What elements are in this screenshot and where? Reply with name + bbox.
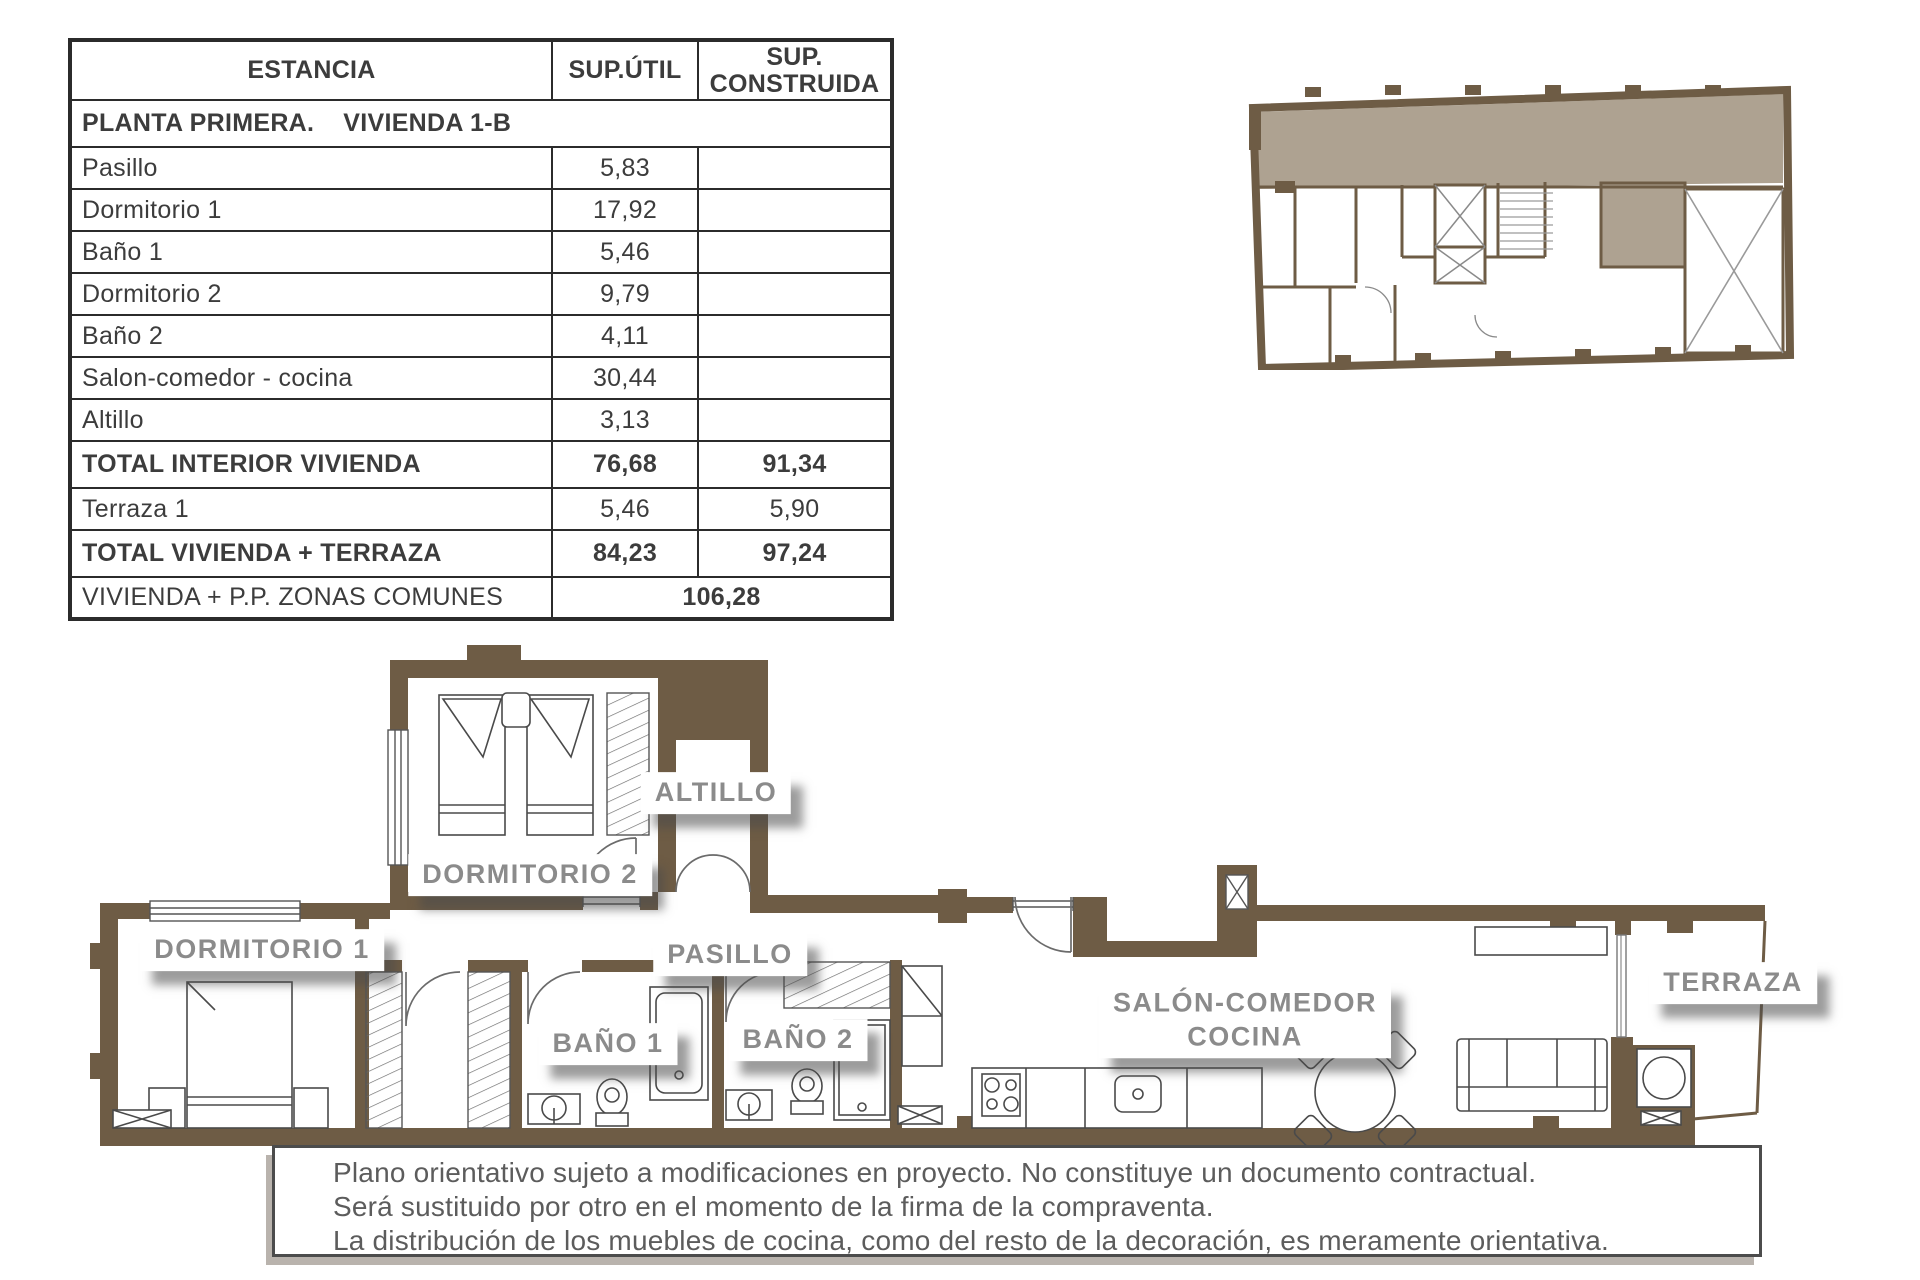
- room-name-cell: Dormitorio 2: [70, 273, 552, 315]
- area-value-cell: 97,24: [698, 530, 892, 577]
- table-row: Baño 24,11: [70, 315, 892, 357]
- area-table: ESTANCIA SUP.ÚTIL SUP. CONSTRUIDA PLANTA…: [68, 38, 894, 621]
- area-value-cell: [698, 189, 892, 231]
- room-name-cell: TOTAL INTERIOR VIVIENDA: [70, 441, 552, 488]
- label-terraza: TERRAZA: [1649, 962, 1817, 1004]
- area-value-cell: 4,11: [552, 315, 698, 357]
- label-altillo: ALTILLO: [641, 772, 791, 814]
- room-name-cell: TOTAL VIVIENDA + TERRAZA: [70, 530, 552, 577]
- section-title: PLANTA PRIMERA. VIVIENDA 1-B: [70, 100, 892, 147]
- area-value-cell: 91,34: [698, 441, 892, 488]
- table-row: Salon-comedor - cocina30,44: [70, 357, 892, 399]
- area-value-cell: 5,46: [552, 488, 698, 530]
- room-name-cell: Salon-comedor - cocina: [70, 357, 552, 399]
- area-value-cell: 3,13: [552, 399, 698, 441]
- room-name-cell: Pasillo: [70, 147, 552, 189]
- header-sup-util: SUP.ÚTIL: [552, 40, 698, 100]
- area-value-cell: 84,23: [552, 530, 698, 577]
- area-value-cell: 76,68: [552, 441, 698, 488]
- disclaimer-line-2: Será sustituido por otro en el momento d…: [333, 1190, 1739, 1224]
- room-name-cell: Baño 2: [70, 315, 552, 357]
- area-value-cell: 30,44: [552, 357, 698, 399]
- table-row: Baño 15,46: [70, 231, 892, 273]
- area-value-cell: [698, 315, 892, 357]
- area-value-cell: 5,46: [552, 231, 698, 273]
- label-salon-line1: SALÓN-COMEDOR: [1113, 987, 1377, 1017]
- table-header-row: ESTANCIA SUP.ÚTIL SUP. CONSTRUIDA: [70, 40, 892, 100]
- area-value-cell: [698, 231, 892, 273]
- keyplan: [1245, 85, 1795, 370]
- room-name-cell: Dormitorio 1: [70, 189, 552, 231]
- disclaimer-line-1: Plano orientativo sujeto a modificacione…: [333, 1156, 1739, 1190]
- table-row: TOTAL VIVIENDA + TERRAZA84,2397,24: [70, 530, 892, 577]
- area-value-cell: [698, 357, 892, 399]
- area-value-cell: 106,28: [552, 577, 892, 619]
- disclaimer-line-3: La distribución de los muebles de cocina…: [333, 1224, 1739, 1258]
- room-name-cell: VIVIENDA + P.P. ZONAS COMUNES: [70, 577, 552, 619]
- floor-plan: [85, 645, 1835, 1180]
- table-row: TOTAL INTERIOR VIVIENDA76,6891,34: [70, 441, 892, 488]
- header-estancia: ESTANCIA: [70, 40, 552, 100]
- area-value-cell: [698, 399, 892, 441]
- area-value-cell: [698, 273, 892, 315]
- area-value-cell: 17,92: [552, 189, 698, 231]
- table-section-row: PLANTA PRIMERA. VIVIENDA 1-B: [70, 100, 892, 147]
- room-name-cell: Altillo: [70, 399, 552, 441]
- header-sup-construida: SUP. CONSTRUIDA: [698, 40, 892, 100]
- label-salon-line2: COCINA: [1187, 1021, 1303, 1051]
- area-value-cell: [698, 147, 892, 189]
- table-row: Dormitorio 117,92: [70, 189, 892, 231]
- area-value-cell: 5,83: [552, 147, 698, 189]
- label-bano1: BAÑO 1: [538, 1023, 677, 1065]
- table-row: Dormitorio 29,79: [70, 273, 892, 315]
- table-footer-row: VIVIENDA + P.P. ZONAS COMUNES106,28: [70, 577, 892, 619]
- area-value-cell: 9,79: [552, 273, 698, 315]
- label-salon: SALÓN-COMEDOR COCINA: [1099, 982, 1391, 1058]
- room-name-cell: Terraza 1: [70, 488, 552, 530]
- label-pasillo: PASILLO: [653, 934, 807, 976]
- table-row: Altillo3,13: [70, 399, 892, 441]
- label-dormitorio1: DORMITORIO 1: [140, 929, 384, 971]
- label-dormitorio2: DORMITORIO 2: [408, 854, 652, 896]
- disclaimer-box: Plano orientativo sujeto a modificacione…: [272, 1145, 1762, 1257]
- table-row: Pasillo5,83: [70, 147, 892, 189]
- label-bano2: BAÑO 2: [728, 1019, 867, 1061]
- table-row: Terraza 15,465,90: [70, 488, 892, 530]
- room-name-cell: Baño 1: [70, 231, 552, 273]
- page: ESTANCIA SUP.ÚTIL SUP. CONSTRUIDA PLANTA…: [0, 0, 1920, 1280]
- area-value-cell: 5,90: [698, 488, 892, 530]
